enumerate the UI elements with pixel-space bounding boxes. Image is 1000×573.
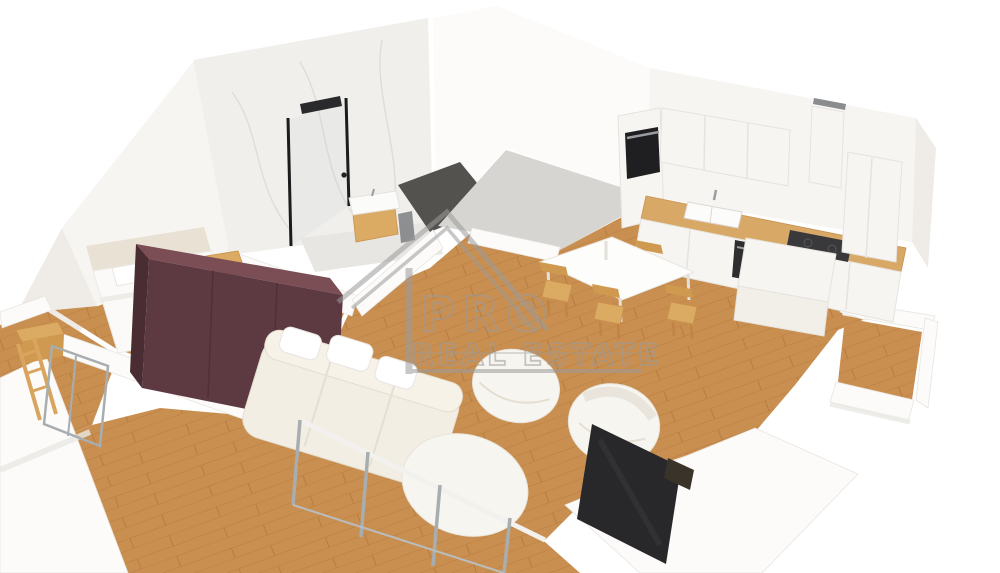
shower-control [341, 172, 346, 177]
watermark-line2: REAL ESTATE [412, 338, 662, 372]
range-hood [809, 106, 844, 188]
apartment-3d-scene: PRO REAL ESTATE [0, 0, 1000, 573]
floor-plan-render: PRO REAL ESTATE [0, 0, 1000, 573]
watermark-line1: PRO [420, 287, 554, 343]
